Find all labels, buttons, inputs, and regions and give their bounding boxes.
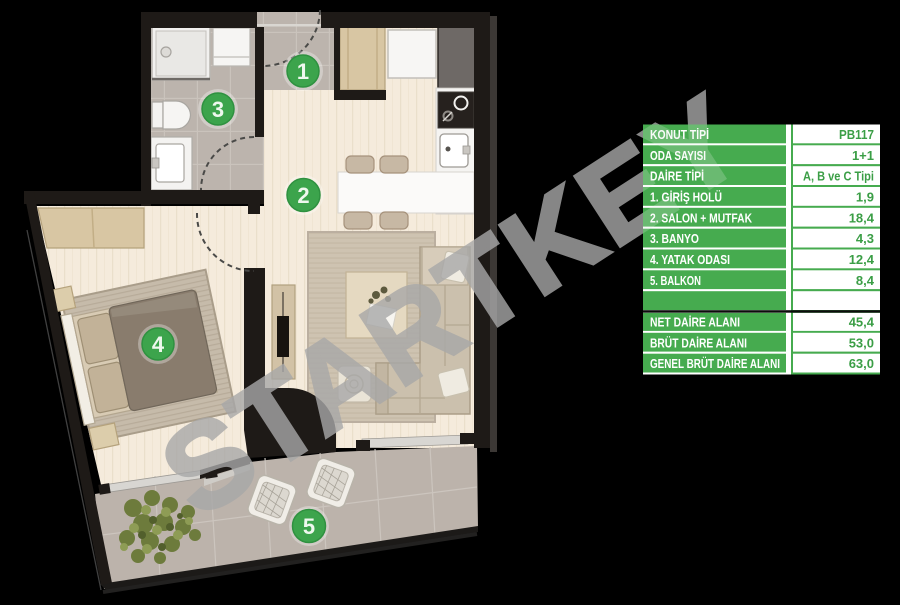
- svg-text:53,0: 53,0: [849, 335, 874, 350]
- svg-text:1: 1: [297, 59, 309, 84]
- svg-text:18,4: 18,4: [849, 210, 875, 225]
- svg-text:1,9: 1,9: [856, 190, 874, 205]
- svg-text:5: 5: [303, 514, 315, 539]
- svg-text:GENEL BRÜT DAİRE ALANI: GENEL BRÜT DAİRE ALANI: [650, 356, 780, 371]
- svg-text:12,4: 12,4: [849, 252, 875, 267]
- svg-text:8,4: 8,4: [856, 273, 875, 288]
- svg-text:PB117: PB117: [839, 127, 874, 142]
- svg-text:4,3: 4,3: [856, 231, 874, 246]
- svg-text:45,4: 45,4: [849, 315, 875, 330]
- svg-text:4. YATAK ODASI: 4. YATAK ODASI: [650, 252, 730, 267]
- svg-text:BRÜT DAİRE ALANI: BRÜT DAİRE ALANI: [650, 335, 747, 350]
- svg-text:4: 4: [152, 332, 165, 357]
- svg-text:A, B ve C Tipi: A, B ve C Tipi: [803, 169, 874, 184]
- svg-text:63,0: 63,0: [849, 356, 874, 371]
- svg-text:1+1: 1+1: [852, 148, 874, 163]
- svg-text:3: 3: [212, 97, 224, 122]
- svg-text:2: 2: [297, 183, 309, 208]
- svg-text:5. BALKON: 5. BALKON: [650, 273, 701, 288]
- svg-text:NET DAİRE ALANI: NET DAİRE ALANI: [650, 315, 740, 330]
